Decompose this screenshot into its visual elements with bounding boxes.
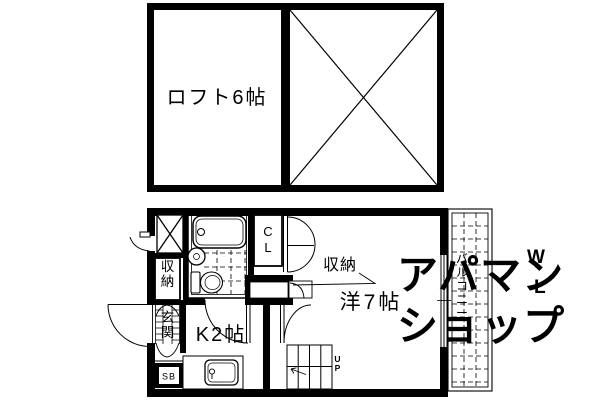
wash-basin <box>188 248 205 265</box>
stairs-up-label: UP <box>334 354 340 373</box>
kitchen-label: K2帖 <box>196 323 246 346</box>
shoe-box-label: SB <box>162 372 176 382</box>
western-room-label: 洋7帖 <box>340 291 403 314</box>
floorplan-canvas: アパマン W L ショップ ロフト6帖 <box>0 0 600 400</box>
entrance-label: 玄関 <box>161 309 175 340</box>
storage-callout-label: 収納 <box>323 256 357 274</box>
toilet <box>191 272 223 293</box>
loft-room-label: ロフト6帖 <box>166 86 267 109</box>
bathtub <box>193 216 246 248</box>
ps-box <box>157 215 183 253</box>
watermark-line2: ショップ <box>397 303 565 349</box>
storage-box: 収納 <box>155 258 180 300</box>
watermark-mark-l: L <box>534 277 546 298</box>
shoe-box: SB <box>155 363 183 388</box>
kitchen-counter <box>183 356 243 389</box>
closet-cl-label: CL <box>263 224 272 255</box>
closet-cl: CL <box>254 215 282 266</box>
faucet-icon <box>209 369 214 374</box>
storage-box-label: 収納 <box>161 259 175 289</box>
lower-storage <box>250 281 312 298</box>
watermark-mark-w: W <box>527 247 545 268</box>
balcony-label: バルコニー <box>456 252 468 320</box>
